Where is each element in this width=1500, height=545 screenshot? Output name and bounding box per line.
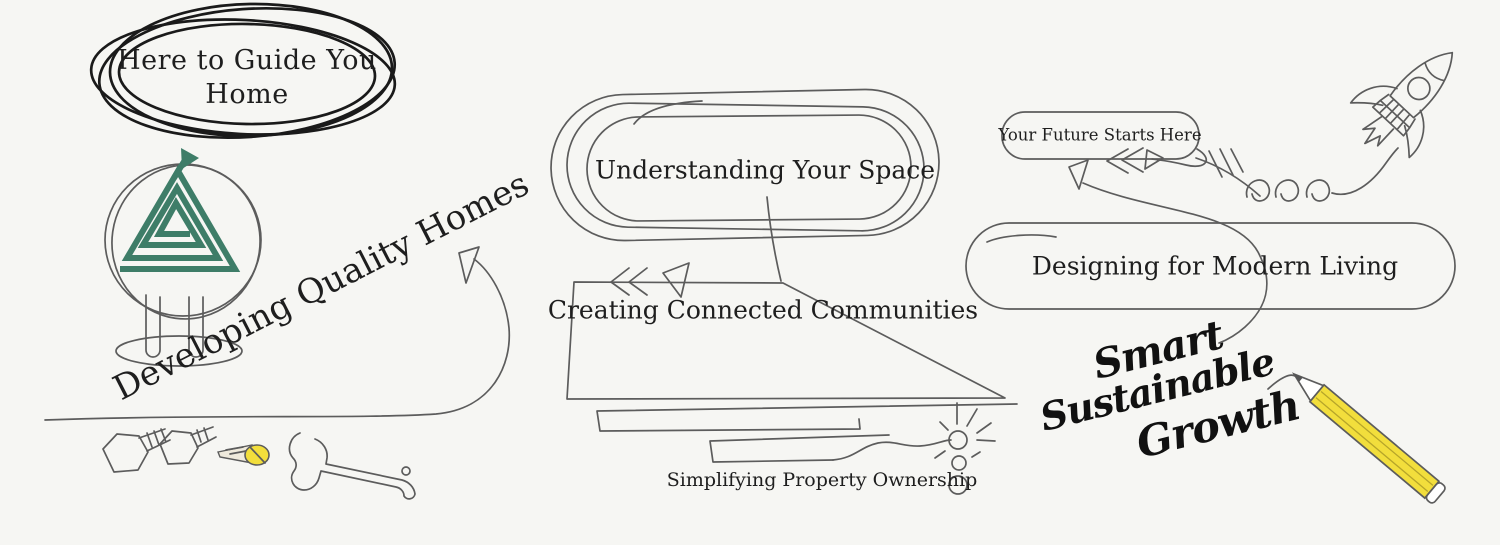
label-simplifying-property-ownership: Simplifying Property Ownership [667, 469, 978, 491]
tagline-line1: Here to Guide You [117, 44, 377, 78]
label-designing-for-modern-living: Designing for Modern Living [1032, 252, 1398, 281]
hex-bolt-icon [103, 429, 170, 472]
hero-illustration: Here to Guide You Home Developing Qualit… [0, 0, 1500, 545]
hex-bolt-icon [160, 427, 216, 464]
rocket-doodle-icon [1337, 25, 1482, 172]
triangle-spiral-logo-icon [120, 148, 235, 269]
screw-icon [218, 445, 269, 465]
pencil-doodle-icon [1268, 366, 1447, 505]
wrench-icon [289, 433, 415, 499]
label-understanding-your-space: Understanding Your Space [595, 156, 935, 185]
curved-arrow-icon [45, 247, 509, 420]
tagline-badge: Here to Guide You Home [117, 44, 377, 112]
label-creating-connected-communities: Creating Connected Communities [548, 296, 978, 325]
connector-line [767, 197, 781, 281]
plank-boards-icon [597, 404, 1017, 462]
communities-ramp-icon [567, 263, 1005, 399]
label-your-future-starts-here: Your Future Starts Here [998, 126, 1201, 145]
tagline-line2: Home [117, 78, 377, 112]
loop-trail-icon [1247, 148, 1398, 201]
